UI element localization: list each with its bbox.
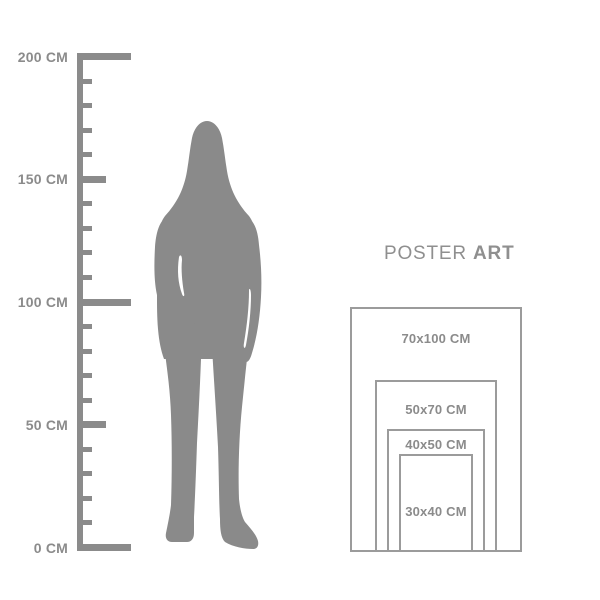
ruler-tick xyxy=(77,520,92,525)
ruler-tick-label: 200 CM xyxy=(0,49,68,65)
ruler-tick xyxy=(77,275,92,280)
poster-size-label: 30x40 CM xyxy=(401,504,471,520)
title-word-poster: POSTER xyxy=(384,243,467,264)
poster-size-label: 50x70 CM xyxy=(377,402,496,418)
ruler-tick xyxy=(77,544,131,551)
ruler-tick xyxy=(77,447,92,452)
poster-size-rect: 30x40 CM xyxy=(399,454,473,552)
ruler-tick xyxy=(77,398,92,403)
title-word-art: ART xyxy=(473,243,514,264)
woman-silhouette-icon xyxy=(149,121,269,552)
ruler-tick xyxy=(77,53,131,60)
poster-art-title: POSTER ART xyxy=(384,243,514,265)
ruler-tick-label: 0 CM xyxy=(0,540,68,556)
ruler-tick xyxy=(77,79,92,84)
ruler-tick xyxy=(77,176,106,183)
ruler-tick xyxy=(77,471,92,476)
ruler-tick xyxy=(77,128,92,133)
ruler-tick xyxy=(77,226,92,231)
ruler-tick xyxy=(77,349,92,354)
ruler-tick xyxy=(77,250,92,255)
ruler-tick xyxy=(77,152,92,157)
ruler-tick xyxy=(77,103,92,108)
ruler-tick xyxy=(77,201,92,206)
ruler-tick xyxy=(77,373,92,378)
ruler-tick-label: 100 CM xyxy=(0,294,68,310)
ruler-tick xyxy=(77,421,106,428)
ruler-tick xyxy=(77,496,92,501)
poster-size-label: 40x50 CM xyxy=(389,437,483,453)
ruler-tick xyxy=(77,324,92,329)
ruler-tick-label: 150 CM xyxy=(0,171,68,187)
poster-size-guide: 200 CM150 CM100 CM50 CM0 CM POSTER ART 7… xyxy=(0,0,600,600)
poster-size-label: 70x100 CM xyxy=(352,331,520,347)
ruler-tick-label: 50 CM xyxy=(0,417,68,433)
ruler-tick xyxy=(77,299,131,306)
